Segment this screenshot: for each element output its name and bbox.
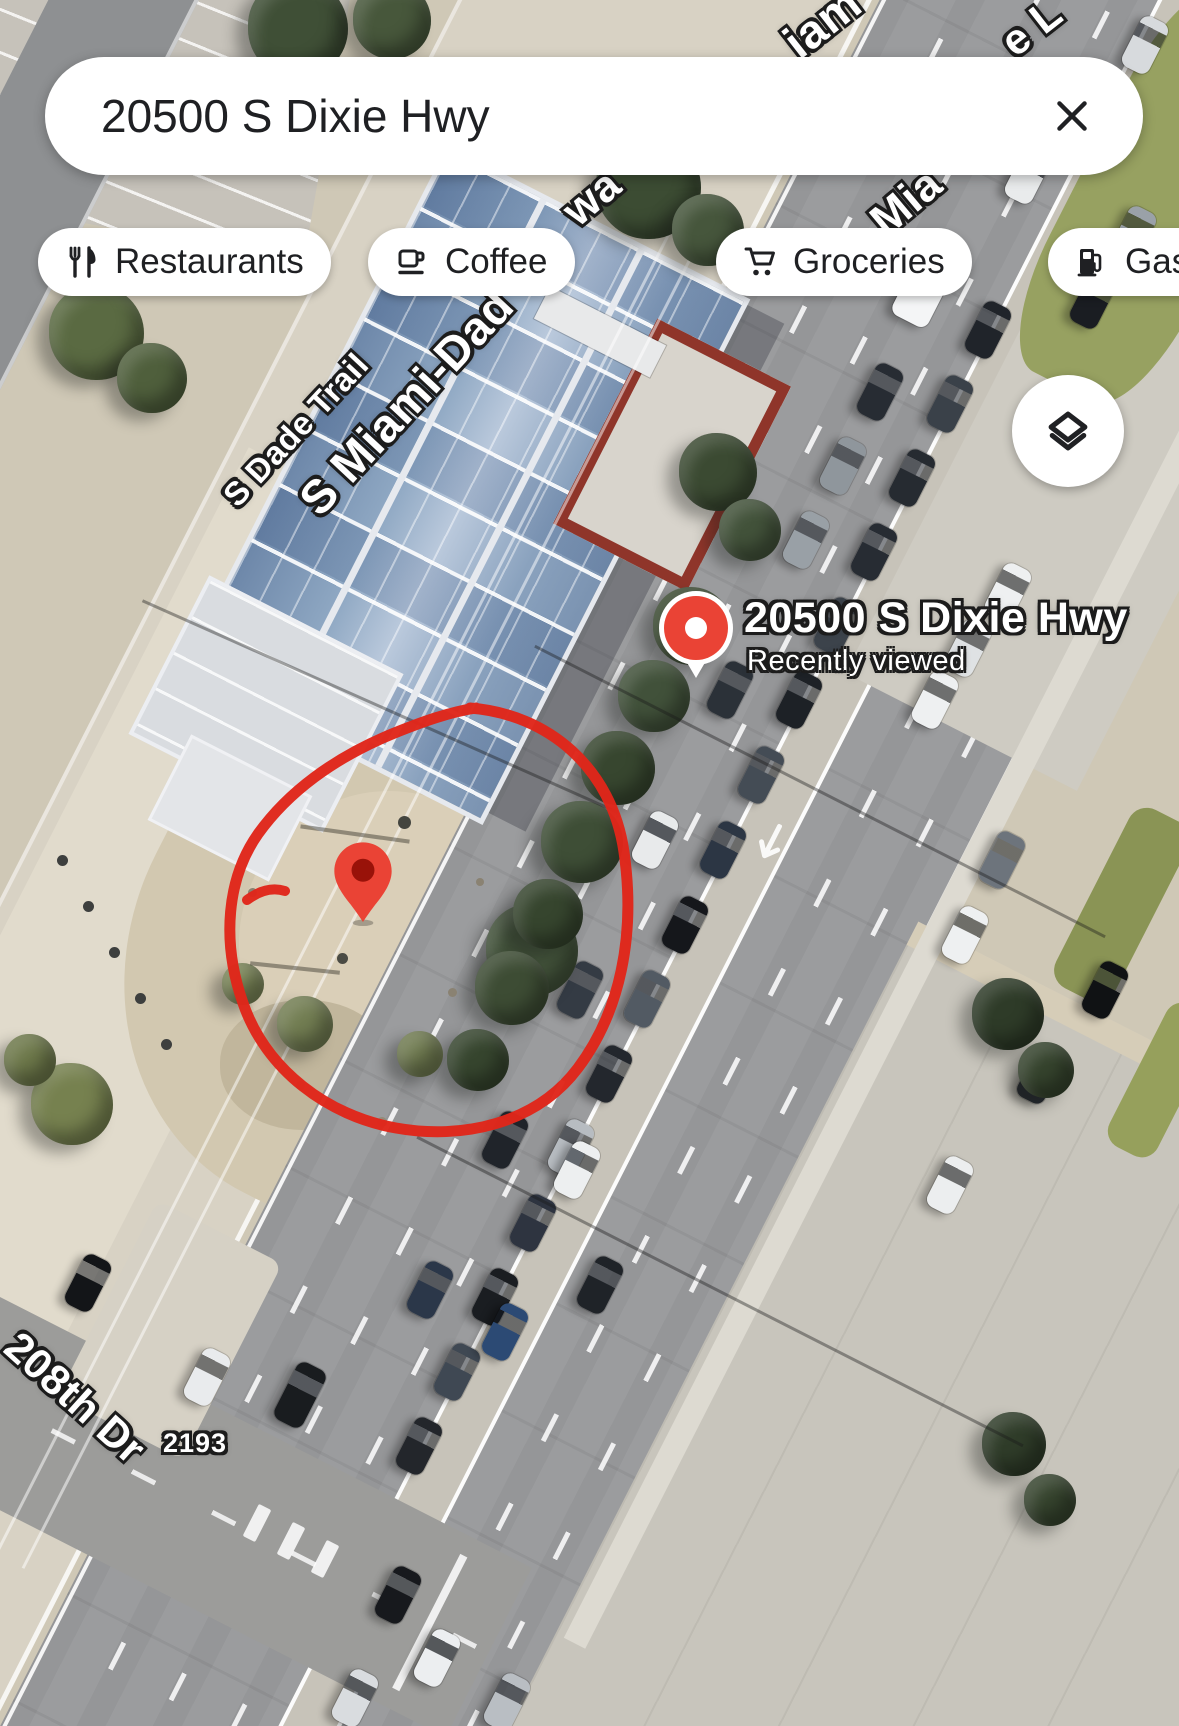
car — [479, 1108, 531, 1172]
close-icon[interactable] — [1041, 85, 1103, 147]
chip-label: Coffee — [445, 242, 548, 282]
car — [629, 808, 681, 872]
groceries-icon — [743, 244, 779, 280]
tree — [513, 879, 583, 949]
car — [181, 1345, 233, 1409]
tree — [581, 731, 655, 805]
marker-title-label: 20500 S Dixie Hwy — [744, 594, 1128, 643]
car — [583, 1042, 635, 1106]
layers-button[interactable] — [1012, 375, 1124, 487]
tree — [353, 0, 431, 59]
chip-restaurants[interactable]: Restaurants — [38, 228, 331, 296]
car — [1079, 958, 1131, 1022]
car — [697, 818, 749, 882]
car — [271, 1359, 329, 1431]
tree — [1018, 1042, 1074, 1098]
ground-object — [476, 878, 484, 886]
recently-viewed-marker-dot — [685, 617, 707, 639]
car — [848, 520, 900, 584]
ground-object — [248, 888, 257, 897]
ground-object — [135, 993, 146, 1004]
tree — [277, 996, 333, 1052]
car — [939, 903, 991, 967]
car — [574, 1253, 626, 1317]
car — [886, 446, 938, 510]
car — [404, 1258, 456, 1322]
ground-object — [296, 1081, 305, 1090]
car — [621, 967, 673, 1031]
car — [962, 298, 1014, 362]
ground-object — [448, 988, 457, 997]
ground-object — [109, 947, 120, 958]
car — [393, 1414, 445, 1478]
ground-object — [337, 953, 348, 964]
car — [431, 1340, 483, 1404]
google-maps-screen: S Dade Trail S Miami-Dad iam e L Mia wa … — [0, 0, 1179, 1726]
close-x-glyph — [1049, 93, 1095, 139]
ground-object — [161, 1039, 172, 1050]
ground-object — [57, 855, 68, 866]
chip-coffee[interactable]: Coffee — [368, 228, 575, 296]
car — [924, 372, 976, 436]
tree — [117, 343, 187, 413]
car — [924, 1153, 976, 1217]
car — [1119, 13, 1171, 77]
car — [481, 1670, 533, 1726]
search-bar[interactable]: 20500 S Dixie Hwy — [45, 57, 1143, 175]
tree — [541, 801, 623, 883]
ground-object — [398, 816, 411, 829]
tree — [719, 499, 781, 561]
dropped-pin-marker[interactable] — [331, 840, 395, 926]
chip-groceries[interactable]: Groceries — [716, 228, 972, 296]
car — [854, 360, 906, 424]
chip-label: Gas — [1125, 242, 1179, 282]
tree — [972, 978, 1044, 1050]
ground-object — [377, 1117, 387, 1127]
coffee-icon — [395, 244, 431, 280]
parcel-number-label: 2193 — [163, 1428, 227, 1459]
car — [817, 434, 869, 498]
car — [780, 508, 832, 572]
marker-subtitle-label: Recently viewed — [747, 645, 966, 678]
car — [507, 1191, 559, 1255]
car — [411, 1626, 463, 1690]
chip-label: Restaurants — [115, 242, 304, 282]
gas-icon — [1075, 244, 1111, 280]
tree — [475, 951, 549, 1025]
layers-icon — [1041, 404, 1095, 458]
car — [372, 1563, 424, 1627]
tree — [397, 1031, 443, 1077]
tree — [1024, 1474, 1076, 1526]
tree — [4, 1034, 56, 1086]
car — [659, 893, 711, 957]
search-query-text: 20500 S Dixie Hwy — [101, 89, 490, 143]
car — [62, 1251, 114, 1315]
restaurants-icon — [65, 244, 101, 280]
car — [329, 1666, 381, 1726]
chip-label: Groceries — [793, 242, 945, 282]
tree — [222, 963, 264, 1005]
tree — [447, 1029, 509, 1091]
chip-gas[interactable]: Gas — [1048, 228, 1179, 296]
tree — [982, 1412, 1046, 1476]
ground-object — [83, 901, 94, 912]
